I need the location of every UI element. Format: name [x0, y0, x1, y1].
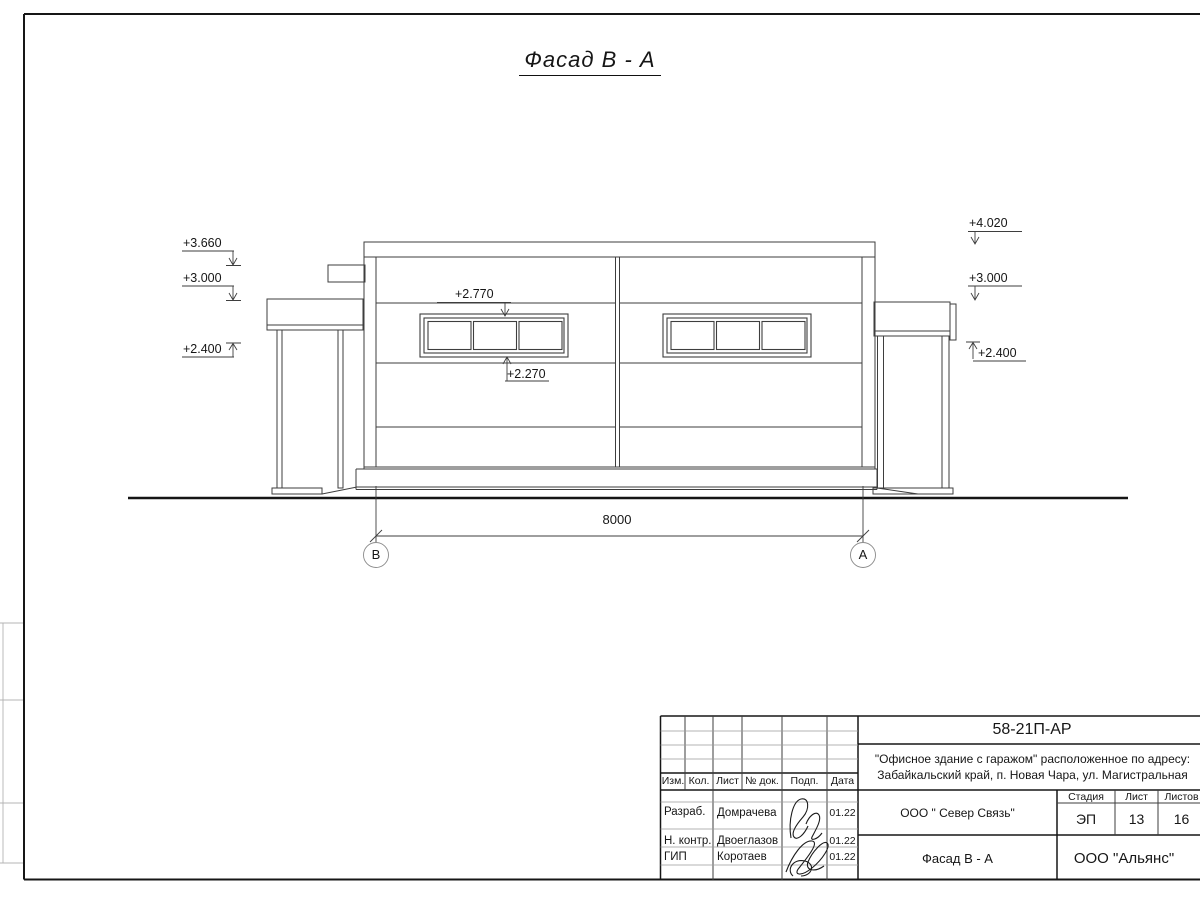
- window-pane: [519, 322, 562, 350]
- titleblock-stage-label: Стадия: [1057, 791, 1115, 803]
- titleblock-sheet-label: Лист: [1115, 791, 1158, 803]
- right-column: [942, 336, 949, 488]
- page-title: Фасад В - А: [519, 47, 661, 76]
- titleblock-col-kol: Кол.: [685, 775, 713, 787]
- sheet-frame: [24, 14, 1200, 880]
- center-mullion: [616, 257, 620, 467]
- elevation-mark-3000-left: +3.000: [183, 271, 222, 285]
- titleblock-sheet-number: 13: [1115, 811, 1158, 827]
- axis-label-B: В: [363, 547, 389, 562]
- elevation-mark-2270: +2.270: [507, 367, 546, 381]
- titleblock-view-title: Фасад В - А: [858, 851, 1057, 866]
- left-column: [338, 330, 343, 488]
- mark-3000-left-leader: [182, 286, 241, 301]
- titleblock-col-data: Дата: [827, 775, 858, 787]
- right-porch: [873, 302, 956, 494]
- left-column: [277, 330, 282, 488]
- axis-label-A: А: [850, 547, 876, 562]
- right-column: [878, 336, 884, 488]
- titleblock-customer: ООО " Север Связь": [858, 806, 1057, 820]
- elevation-mark-4020: +4.020: [969, 216, 1008, 230]
- window-right: [663, 314, 811, 357]
- titleblock-sheets-label: Листов: [1158, 791, 1200, 803]
- elevation-mark-2400-right: +2.400: [978, 346, 1017, 360]
- elevation-mark-3000-right: +3.000: [969, 271, 1008, 285]
- titleblock-stage-value: ЭП: [1057, 811, 1115, 827]
- window-pane: [717, 322, 760, 350]
- titleblock-date-3: 01.22: [827, 851, 858, 863]
- elevation-mark-2400-left: +2.400: [183, 342, 222, 356]
- mark-3660-leader: [182, 251, 241, 266]
- window-pane: [671, 322, 714, 350]
- building-outline: [356, 242, 877, 490]
- titleblock-doc-number: 58-21П-АР: [858, 721, 1200, 739]
- signature-dvoeglazov-korotaev: [786, 841, 828, 876]
- elevation-mark-leaders: [182, 232, 1026, 382]
- mark-4020-leader: [968, 232, 1022, 245]
- titleblock-role-razrab: Разраб.: [664, 806, 705, 818]
- project-address-line2: Забайкальский край, п. Новая Чара, ул. М…: [860, 767, 1200, 783]
- titleblock-name-domracheva: Домрачева: [717, 807, 777, 819]
- right-ramp: [877, 488, 918, 494]
- window-pane: [428, 322, 471, 350]
- project-address-line1: "Офисное здание с гаражом" расположенное…: [860, 751, 1200, 767]
- window-left: [420, 314, 568, 357]
- elevation-mark-3660: +3.660: [183, 236, 222, 250]
- titleblock-name-korotaev: Коротаев: [717, 851, 767, 863]
- titleblock-date-2: 01.22: [827, 835, 858, 847]
- margin-stamp-lines: [0, 623, 23, 863]
- titleblock-role-nkontr: Н. контр.: [664, 835, 711, 847]
- titleblock-col-doc: № док.: [742, 775, 782, 787]
- titleblock-sheets-total: 16: [1158, 811, 1200, 827]
- right-canopy-lip: [950, 304, 956, 340]
- signature-domracheva: [790, 799, 822, 840]
- titleblock-project: "Офисное здание с гаражом" расположенное…: [860, 751, 1200, 783]
- titleblock-col-izm: Изм.: [661, 775, 685, 787]
- titleblock-organization: ООО "Альянс": [1057, 850, 1191, 867]
- base-plinth: [356, 469, 877, 490]
- window-pane: [474, 322, 517, 350]
- titleblock-date-1: 01.22: [827, 807, 858, 819]
- window-pane: [762, 322, 805, 350]
- parapet-band: [364, 242, 875, 257]
- titleblock-name-dvoeglazov: Двоеглазов: [717, 835, 778, 847]
- left-porch: [267, 265, 365, 494]
- elevation-mark-2770: +2.770: [455, 287, 494, 301]
- titleblock-col-list: Лист: [713, 775, 742, 787]
- dimension-value: 8000: [587, 512, 647, 527]
- drawing-sheet: Фасад В - А +3.660 +3.000 +2.400 +2.770 …: [0, 0, 1200, 900]
- left-beam: [328, 265, 365, 282]
- left-porch-base: [272, 488, 322, 494]
- titleblock-role-gip: ГИП: [664, 851, 687, 863]
- signatures: [786, 799, 828, 876]
- mark-3000-right-leader: [968, 286, 1022, 300]
- titleblock-col-podp: Подп.: [782, 775, 827, 787]
